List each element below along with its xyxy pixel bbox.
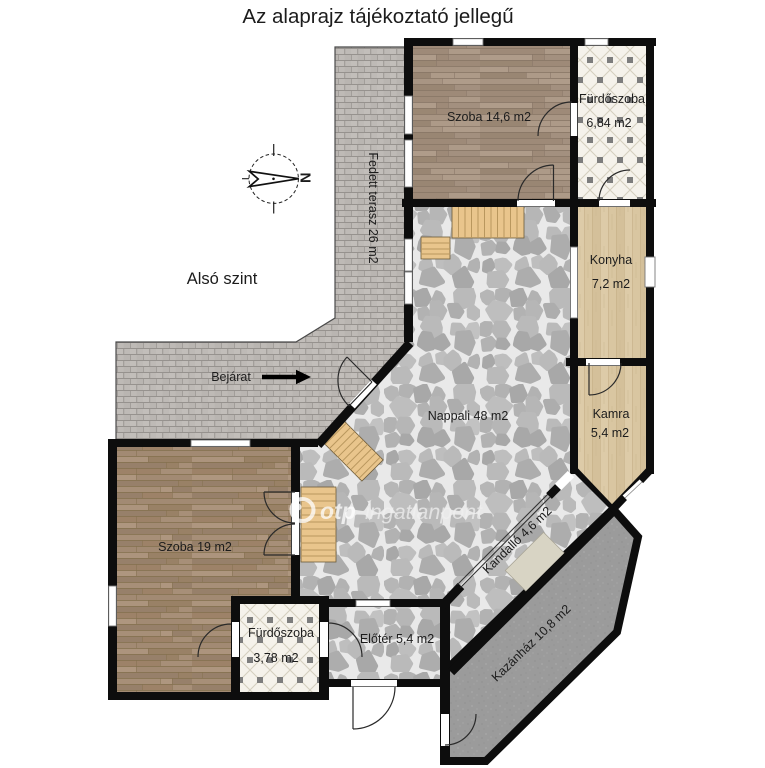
svg-text:Nappali 48 m2: Nappali 48 m2 xyxy=(428,409,509,423)
svg-text:Kamra: Kamra xyxy=(593,407,630,421)
svg-text:3,78 m2: 3,78 m2 xyxy=(253,651,298,665)
svg-text:6,84 m2: 6,84 m2 xyxy=(586,116,631,130)
svg-text:7,2 m2: 7,2 m2 xyxy=(592,277,630,291)
svg-text:Az alaprajz tájékoztató jelleg: Az alaprajz tájékoztató jellegű xyxy=(242,5,513,28)
svg-text:Fürdőszoba: Fürdőszoba xyxy=(248,626,314,640)
svg-text:otp: otp xyxy=(320,498,356,524)
svg-text:Szoba 19 m2: Szoba 19 m2 xyxy=(158,540,232,554)
svg-text:Fedett terasz 26 m2: Fedett terasz 26 m2 xyxy=(366,152,380,263)
svg-text:Konyha: Konyha xyxy=(590,253,632,267)
svg-text:Előtér 5,4 m2: Előtér 5,4 m2 xyxy=(360,632,434,646)
svg-text:Szoba 14,6 m2: Szoba 14,6 m2 xyxy=(447,110,531,124)
svg-text:N: N xyxy=(297,173,313,183)
svg-text:Bejárat: Bejárat xyxy=(211,370,251,384)
svg-text:Fürdőszoba: Fürdőszoba xyxy=(579,92,645,106)
svg-text:ingatlanpont: ingatlanpont xyxy=(365,500,483,524)
svg-text:Alsó szint: Alsó szint xyxy=(187,270,258,288)
svg-text:5,4 m2: 5,4 m2 xyxy=(591,426,629,440)
